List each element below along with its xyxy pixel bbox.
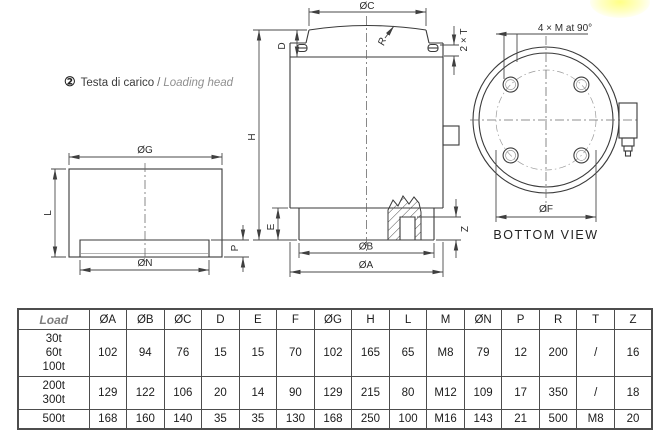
column-header: ØB (127, 309, 165, 330)
column-header: ØC (164, 309, 202, 330)
caption-separator: / (157, 77, 160, 89)
table-row: 500t1681601403535130168250100M1614321500… (18, 410, 652, 430)
value-cell: 168 (89, 410, 127, 430)
column-header: ØG (314, 309, 352, 330)
value-cell: 200 (539, 330, 577, 377)
value-cell: 250 (352, 410, 390, 430)
value-cell: 15 (239, 330, 277, 377)
bottom-pocket (80, 241, 209, 257)
value-cell: 90 (277, 377, 315, 410)
value-cell: 130 (277, 410, 315, 430)
value-cell: 12 (502, 330, 540, 377)
table-header-row: LoadØAØBØCDEFØGHLMØNPRTZ (18, 309, 652, 330)
value-cell: 35 (239, 410, 277, 430)
value-cell: M8 (577, 410, 615, 430)
highlight-mark (590, 0, 650, 18)
value-cell: 16 (614, 330, 652, 377)
value-cell: M8 (427, 330, 465, 377)
column-header: P (502, 309, 540, 330)
value-cell: 165 (352, 330, 390, 377)
dimensions-table: LoadØAØBØCDEFØGHLMØNPRTZ 30t60t100t10294… (17, 308, 653, 430)
column-header: R (539, 309, 577, 330)
table-row: 30t60t100t102947615157010216565M87912200… (18, 330, 652, 377)
column-header: L (389, 309, 427, 330)
dim-label-r: R (376, 36, 389, 47)
dim-label-oc: ØC (360, 1, 375, 12)
dim-label-h: H (247, 133, 258, 140)
dome-cap (309, 26, 426, 31)
value-cell: / (577, 330, 615, 377)
value-cell: 35 (202, 410, 240, 430)
value-cell: 20 (202, 377, 240, 410)
dim-label-on: ØN (138, 258, 153, 269)
value-cell: 76 (164, 330, 202, 377)
load-cell: 200t300t (18, 377, 89, 410)
thread-detail (388, 196, 421, 240)
column-header: Z (614, 309, 652, 330)
column-header: E (239, 309, 277, 330)
cable-connector (443, 126, 459, 145)
bottom-view-drawing: 4 × M at 90° ØF BOTTOM VIEW (470, 20, 666, 242)
section-view-drawing: ØG L P ØN (35, 140, 260, 295)
value-cell: 350 (539, 377, 577, 410)
value-cell: 17 (502, 377, 540, 410)
value-cell: 140 (164, 410, 202, 430)
value-cell: 160 (127, 410, 165, 430)
value-cell: 65 (389, 330, 427, 377)
bottom-view-caption: BOTTOM VIEW (493, 228, 598, 242)
dim-label-l: L (43, 210, 54, 216)
value-cell: 21 (502, 410, 540, 430)
value-cell: 80 (389, 377, 427, 410)
dim-label-holes: 4 × M at 90° (538, 23, 592, 34)
value-cell: 109 (464, 377, 502, 410)
value-cell: 18 (614, 377, 652, 410)
value-cell: 15 (202, 330, 240, 377)
dim-label-e: E (266, 223, 277, 230)
load-cell: 30t60t100t (18, 330, 89, 377)
value-cell: 102 (89, 330, 127, 377)
item-number-badge: ② (64, 74, 76, 89)
dim-label-p: P (230, 244, 241, 251)
column-header: T (577, 309, 615, 330)
load-cell: 500t (18, 410, 89, 430)
value-cell: M16 (427, 410, 465, 430)
dim-label-oa: ØA (359, 260, 374, 271)
dim-label-of: ØF (539, 204, 553, 215)
value-cell: 79 (464, 330, 502, 377)
value-cell: 122 (127, 377, 165, 410)
value-cell: 168 (314, 410, 352, 430)
value-cell: M12 (427, 377, 465, 410)
dim-label-d: D (277, 42, 288, 49)
value-cell: 20 (614, 410, 652, 430)
value-cell: 215 (352, 377, 390, 410)
value-cell: 100 (389, 410, 427, 430)
value-cell: 94 (127, 330, 165, 377)
flange-circles (470, 36, 638, 212)
datasheet-page: ②Testa di carico/Loading head ØG L (0, 0, 666, 431)
caption-italian: Testa di carico (81, 77, 155, 89)
cable-gland (619, 103, 637, 156)
column-header: ØA (89, 309, 127, 330)
column-header: H (352, 309, 390, 330)
value-cell: / (577, 377, 615, 410)
hatched-body (69, 163, 222, 266)
cap-thread-holes (297, 45, 438, 52)
value-cell: 14 (239, 377, 277, 410)
value-cell: 102 (314, 330, 352, 377)
value-cell: 129 (89, 377, 127, 410)
value-cell: 70 (277, 330, 315, 377)
figure-caption: ②Testa di carico/Loading head (64, 74, 233, 90)
value-cell: 500 (539, 410, 577, 430)
side-view-drawing: ØC D H E 2 × T R ØB ØA Z (245, 0, 470, 300)
value-cell: 143 (464, 410, 502, 430)
side-dimensions: ØC D H E 2 × T R ØB ØA Z (247, 1, 471, 277)
dim-label-og: ØG (137, 145, 153, 156)
column-header-load: Load (18, 309, 89, 330)
dim-label-ob: ØB (359, 242, 374, 253)
column-header: M (427, 309, 465, 330)
column-header: D (202, 309, 240, 330)
dim-label-2t: 2 × T (459, 29, 470, 52)
column-header: ØN (464, 309, 502, 330)
caption-english: Loading head (163, 77, 233, 89)
column-header: F (277, 309, 315, 330)
value-cell: 106 (164, 377, 202, 410)
table-row: 200t300t12912210620149012921580M12109173… (18, 377, 652, 410)
value-cell: 129 (314, 377, 352, 410)
